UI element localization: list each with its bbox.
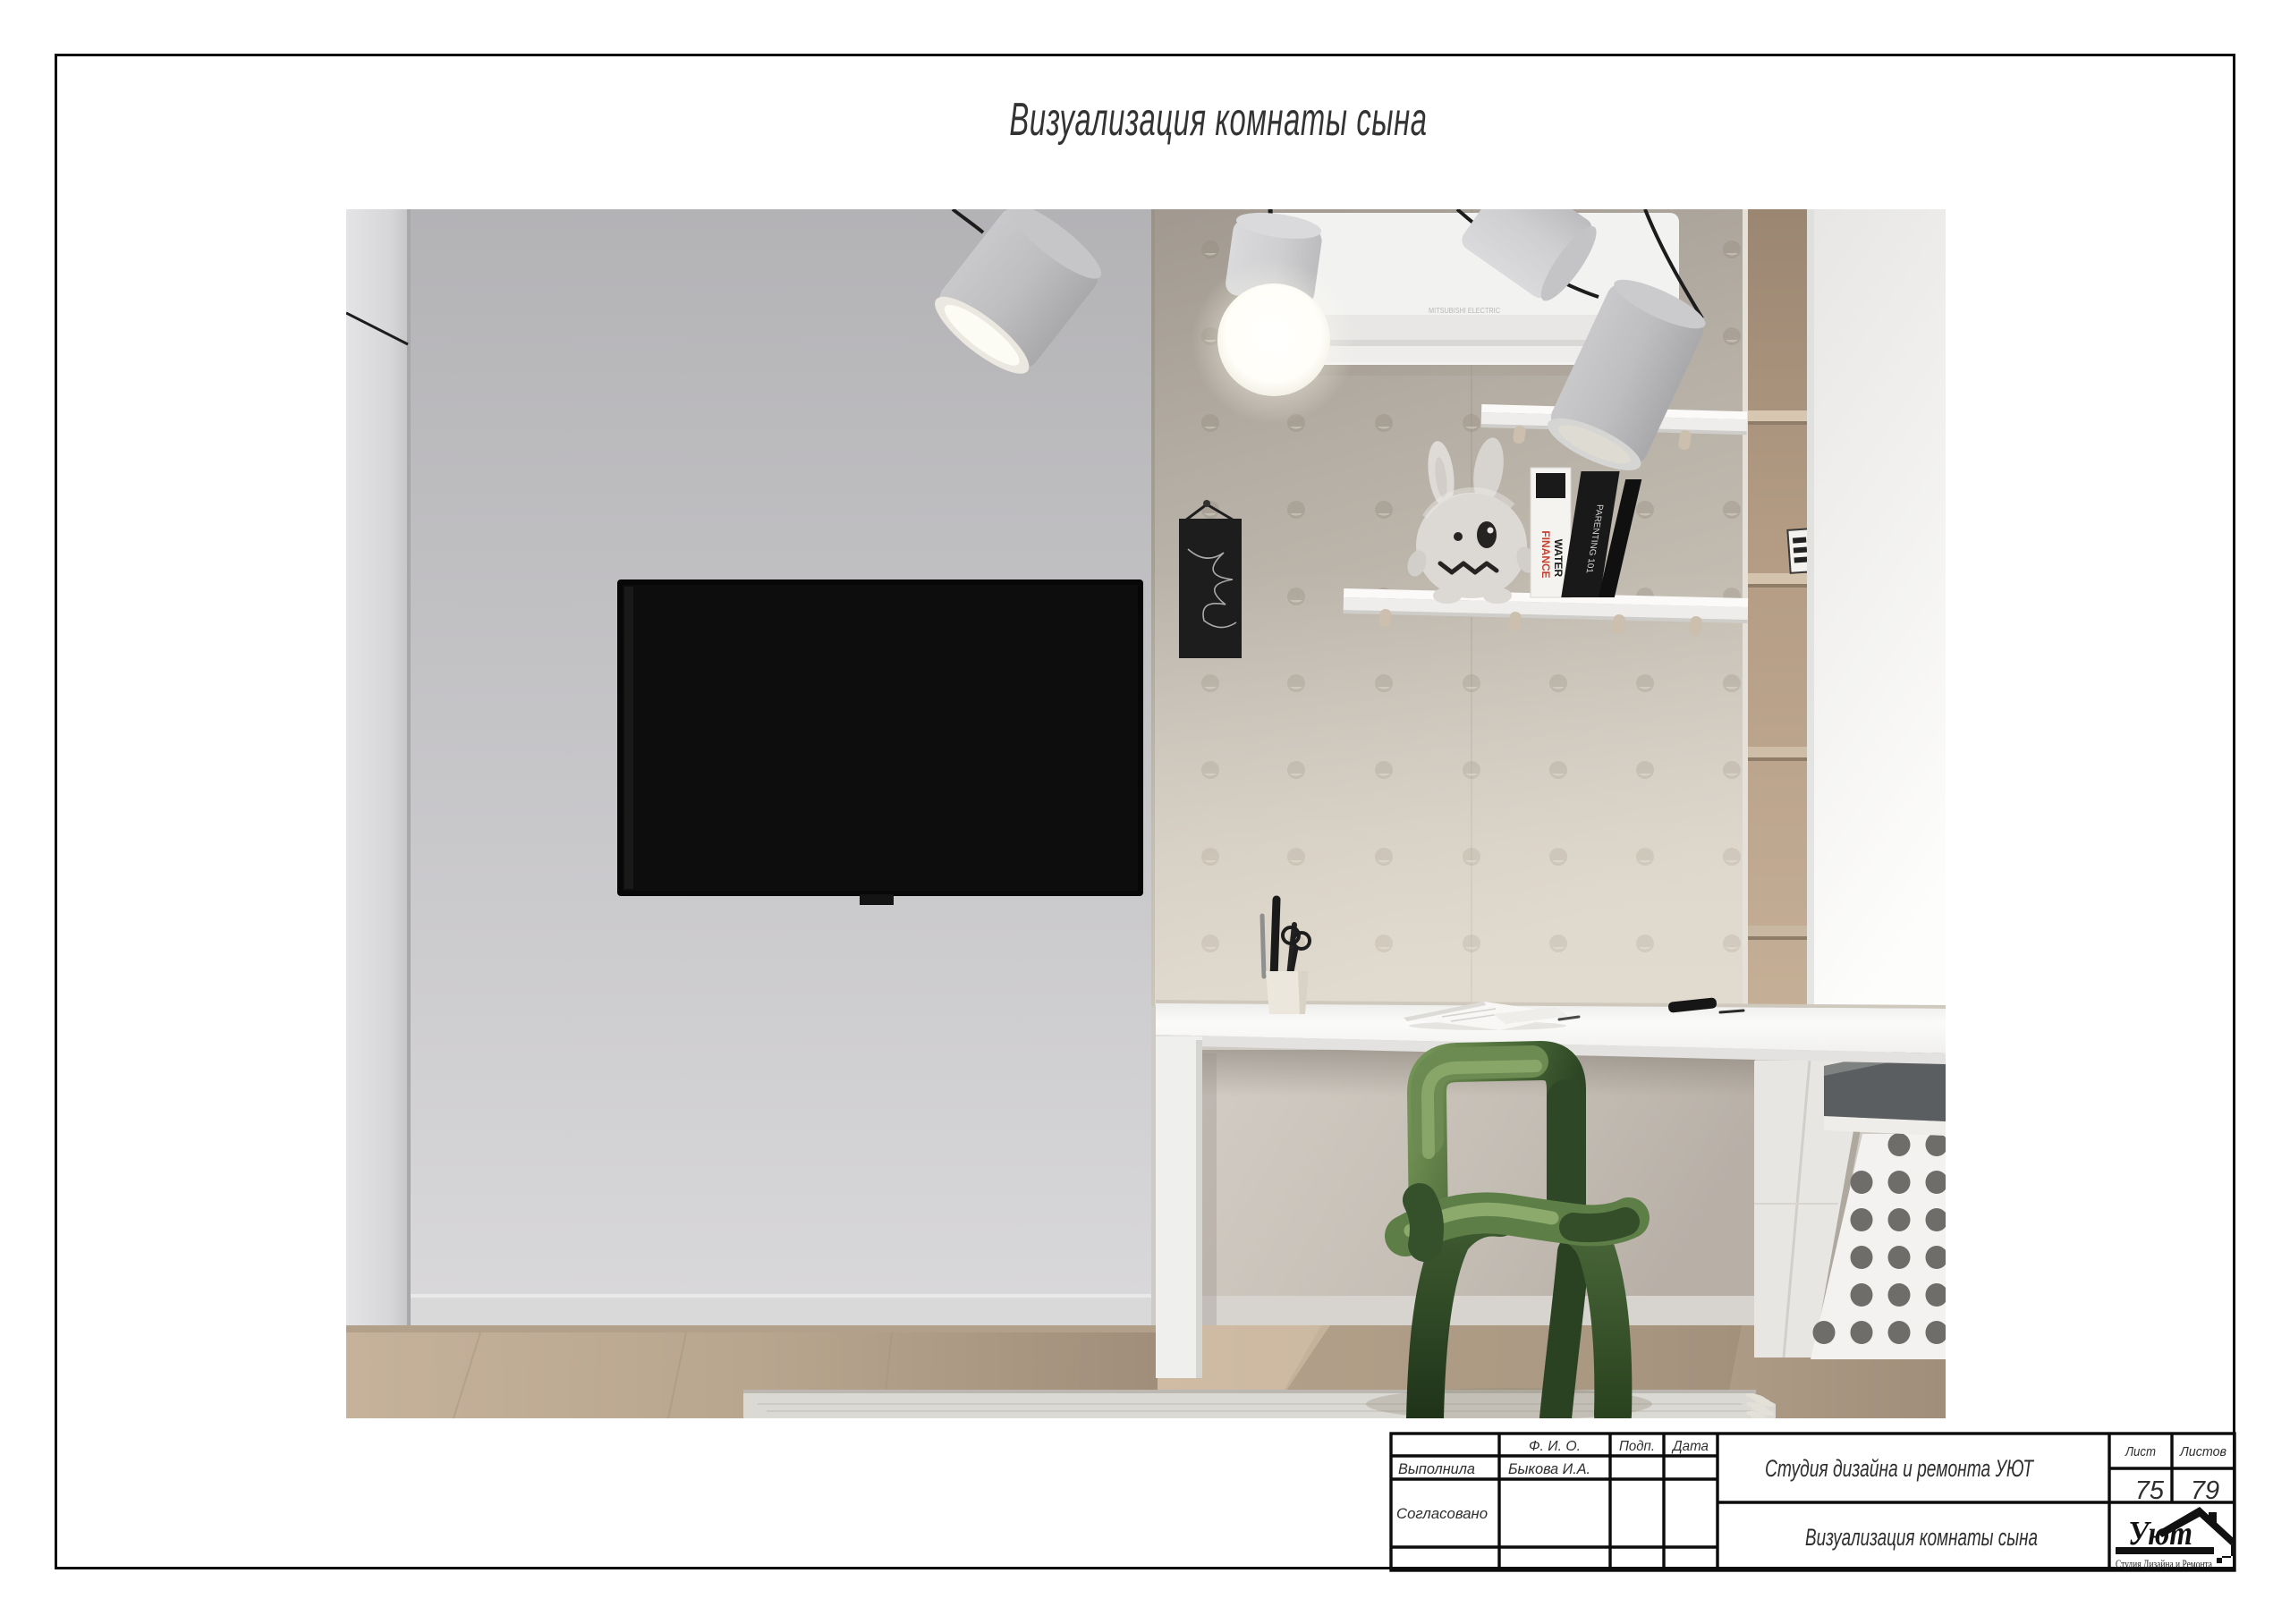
- svg-text:Подп.: Подп.: [1619, 1439, 1655, 1454]
- svg-text:79: 79: [2191, 1476, 2219, 1505]
- svg-text:75: 75: [2135, 1476, 2165, 1505]
- svg-text:Дата: Дата: [1671, 1439, 1709, 1454]
- svg-text:Студия дизайна и ремонта УЮТ: Студия дизайна и ремонта УЮТ: [1765, 1455, 2035, 1482]
- svg-text:Студия Дизайна и Ремонта: Студия Дизайна и Ремонта: [2116, 1558, 2212, 1570]
- svg-text:WATER: WATER: [1552, 539, 1565, 578]
- svg-text:Лист: Лист: [2125, 1444, 2156, 1459]
- svg-text:Согласовано: Согласовано: [1396, 1505, 1488, 1522]
- svg-text:Уют: Уют: [2128, 1515, 2192, 1552]
- svg-text:MITSUBISHI ELECTRIC: MITSUBISHI ELECTRIC: [1429, 306, 1500, 315]
- svg-text:Выполнила: Выполнила: [1398, 1460, 1475, 1477]
- svg-text:Визуализация комнаты сына: Визуализация комнаты сына: [1805, 1524, 2038, 1551]
- svg-text:Ф. И. О.: Ф. И. О.: [1529, 1439, 1581, 1454]
- svg-text:FINANCE: FINANCE: [1539, 530, 1552, 578]
- svg-text:Быкова И.А.: Быкова И.А.: [1508, 1460, 1590, 1477]
- svg-text:Листов: Листов: [2179, 1444, 2226, 1459]
